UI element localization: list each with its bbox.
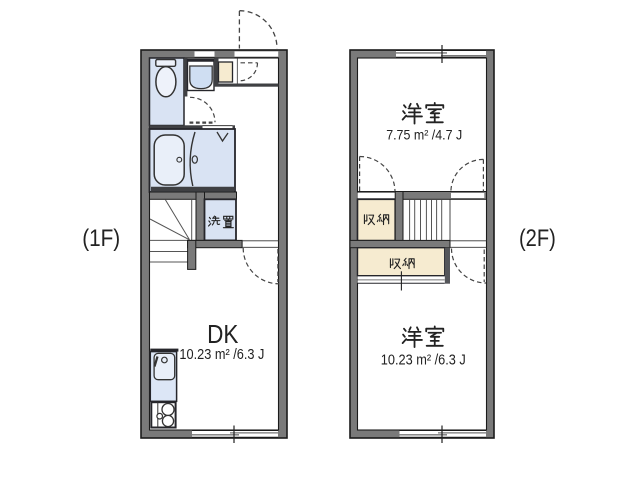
svg-text:(1F): (1F) <box>82 225 120 252</box>
svg-text:DK: DK <box>207 319 239 349</box>
svg-text:10.23 m² /6.3 J: 10.23 m² /6.3 J <box>381 352 466 368</box>
svg-text:7.75 m² /4.7 J: 7.75 m² /4.7 J <box>386 126 462 142</box>
svg-text:10.23 m² /6.3 J: 10.23 m² /6.3 J <box>179 347 264 363</box>
svg-text:(2F): (2F) <box>519 225 556 252</box>
